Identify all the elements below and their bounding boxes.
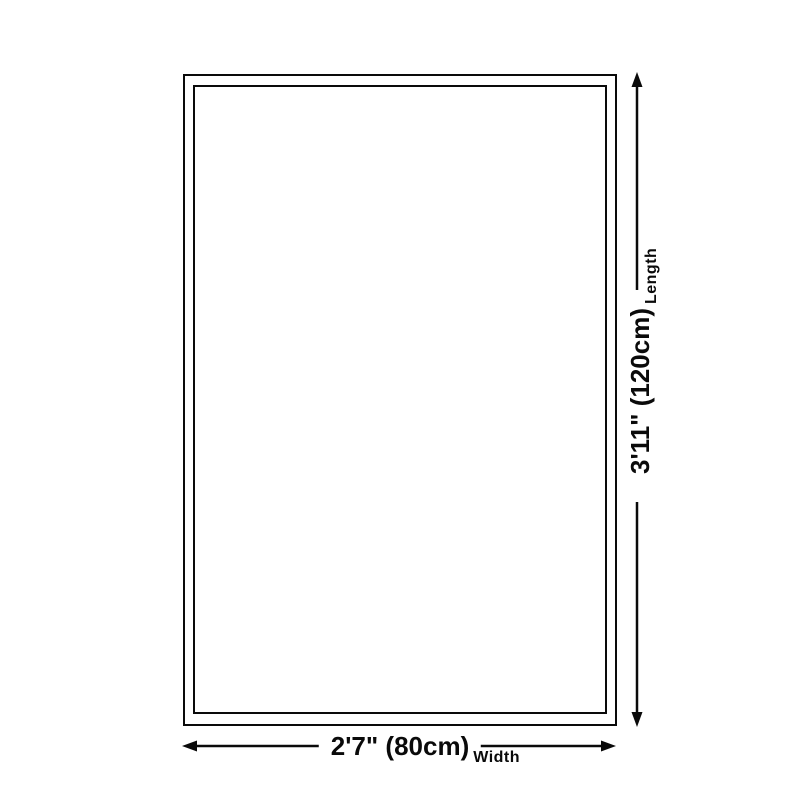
length-axis-label: Length — [644, 248, 660, 304]
rug-outline-inner — [193, 85, 607, 714]
width-axis-label: Width — [473, 750, 520, 766]
length-label: 3'11" (120cm) Length — [627, 290, 653, 492]
arrowhead-left-icon — [182, 741, 197, 752]
length-value: 3'11" (120cm) — [627, 290, 653, 492]
arrowhead-right-icon — [601, 741, 616, 752]
width-label: 2'7" (80cm) Width — [319, 733, 481, 759]
rug-outline-outer — [183, 74, 617, 726]
product-dimension-diagram: 3'11" (120cm) Length 2'7" (80cm) Width — [0, 0, 800, 800]
arrowhead-down-icon — [632, 712, 643, 727]
width-value: 2'7" (80cm) — [319, 733, 481, 759]
arrowhead-up-icon — [632, 72, 643, 87]
